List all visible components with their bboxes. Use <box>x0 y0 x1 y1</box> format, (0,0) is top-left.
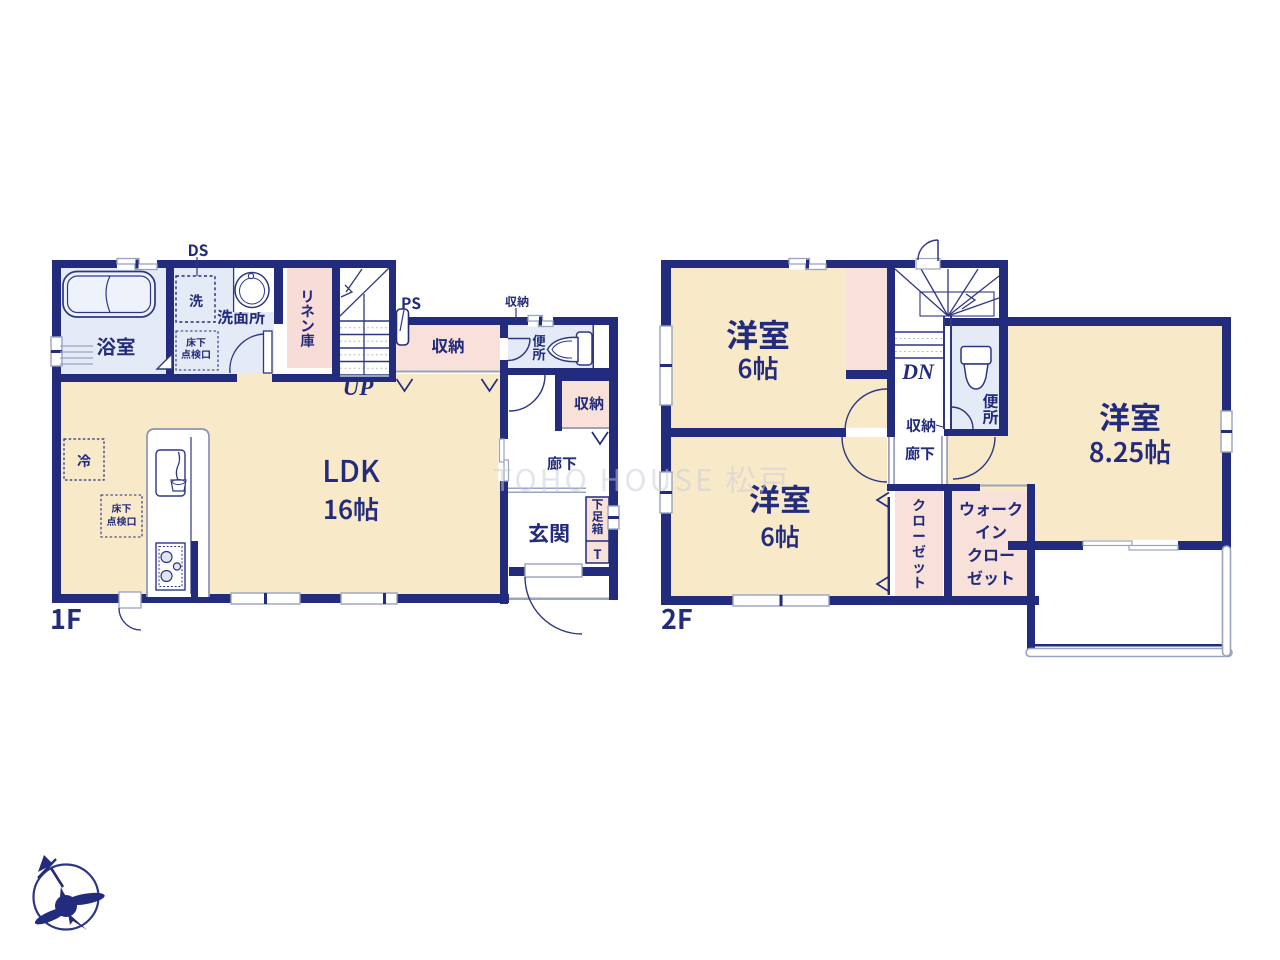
svg-text:DN: DN <box>901 359 935 384</box>
svg-text:UP: UP <box>343 375 375 400</box>
